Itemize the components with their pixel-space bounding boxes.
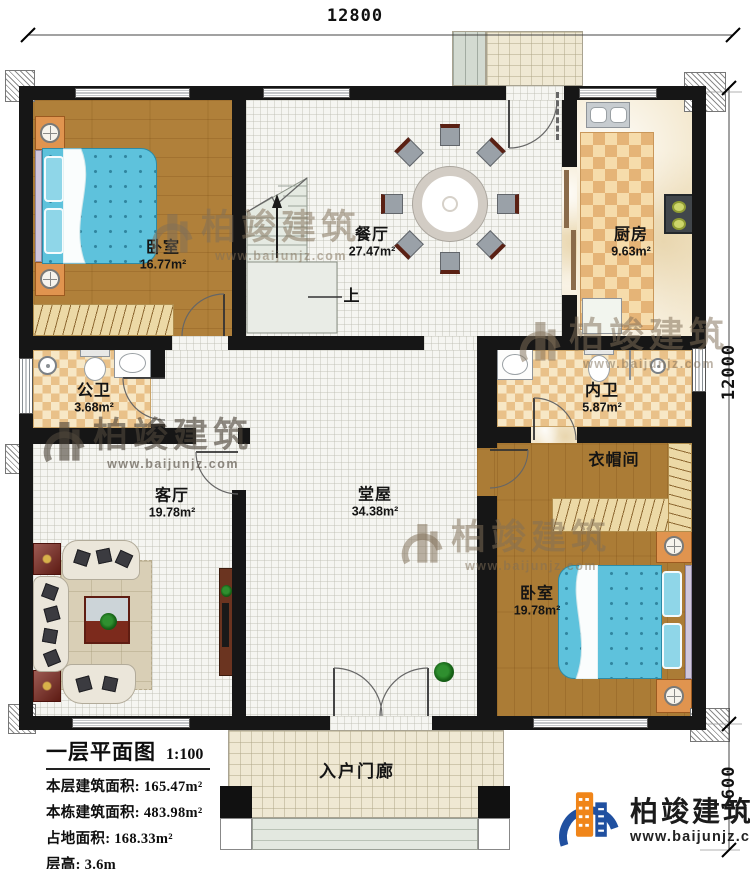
shower-drain-icon xyxy=(38,356,57,375)
nightstand xyxy=(656,529,692,563)
sliding-door-leaf xyxy=(571,230,576,290)
bath-sink xyxy=(114,348,151,378)
label-inner-bath: 内卫5.87m² xyxy=(582,383,622,416)
window xyxy=(692,348,706,392)
brand-name: 柏竣建筑 xyxy=(630,797,750,826)
cloakroom-rack-bottom xyxy=(552,498,674,532)
plan-title-row: 一层平面图 1:100 xyxy=(46,736,210,770)
porch-step-block-left xyxy=(220,818,252,850)
info-building-area: 本栋建筑面积: 483.98m² xyxy=(46,801,210,822)
dining-chair xyxy=(440,252,460,274)
blanket-fold xyxy=(566,565,598,679)
corner-table xyxy=(33,670,61,702)
toilet xyxy=(584,346,614,384)
label-porch: 入户门廊 xyxy=(319,762,395,782)
dining-table-center xyxy=(442,196,458,212)
porch-column-left xyxy=(220,786,252,818)
corner-table xyxy=(33,543,61,575)
screen-door-track xyxy=(556,92,559,140)
toilet xyxy=(80,348,110,382)
brand-logo-icon xyxy=(550,788,622,854)
lamp-icon xyxy=(664,686,684,706)
plant-icon xyxy=(221,585,232,597)
wall-kitchen-west-upper xyxy=(562,100,577,167)
plant-icon xyxy=(434,662,454,682)
wall-publicbath-east-upper xyxy=(151,350,165,378)
lamp-icon xyxy=(664,536,684,556)
lamp-icon xyxy=(40,269,60,289)
bed-bedroom-br xyxy=(558,563,692,681)
doorway-entry xyxy=(330,716,432,730)
window xyxy=(19,358,33,414)
porch-column-right xyxy=(478,786,510,818)
wall-living-north-stub xyxy=(238,428,250,444)
info-storey-height: 层高: 3.6m xyxy=(46,853,210,869)
label-kitchen: 厨房9.63m² xyxy=(611,227,651,260)
plant-icon xyxy=(100,613,117,630)
floor-plan-canvas: 12800 12000 1600 卧室16.77m² 餐厅27.47m² 厨房9… xyxy=(0,0,750,869)
lamp-icon xyxy=(40,123,60,143)
wall-living-north xyxy=(33,428,196,444)
window xyxy=(263,88,350,98)
wall-hall-east xyxy=(477,336,497,448)
porch-step-block-right xyxy=(478,818,510,850)
wardrobe-bedroom-tl xyxy=(33,304,174,336)
brand-text: 柏竣建筑 www.baijunjz.com xyxy=(630,797,750,844)
window xyxy=(533,718,648,728)
window xyxy=(579,88,657,98)
doorway-cloakroom xyxy=(477,448,497,496)
label-stairs-up: 上 xyxy=(343,288,360,306)
blanket-fold xyxy=(63,148,99,264)
back-porch xyxy=(486,31,583,86)
wall-living-hall xyxy=(232,490,246,716)
floor-dining xyxy=(246,100,562,336)
nightstand xyxy=(35,116,65,150)
dining-chair xyxy=(497,194,519,214)
porch-steps xyxy=(252,818,478,850)
wall-kitchen-west-lower xyxy=(562,295,577,350)
doorway-inner-bath xyxy=(531,427,577,443)
wall-hall-east2 xyxy=(477,496,497,716)
wall-exterior-right xyxy=(692,86,706,730)
tv-icon xyxy=(222,603,229,647)
coffee-table xyxy=(84,596,130,644)
wall-kitchen-south xyxy=(497,336,706,350)
kitchen-sink xyxy=(586,102,630,128)
label-cloakroom: 衣帽间 xyxy=(588,452,639,470)
wall-innerbath-south-left xyxy=(497,427,531,443)
label-bedroom-tl: 卧室16.77m² xyxy=(140,240,187,273)
label-living: 客厅19.78m² xyxy=(149,488,196,521)
shower-head-icon xyxy=(650,358,666,374)
dim-width-top: 12800 xyxy=(325,6,385,26)
label-hall: 堂屋34.38m² xyxy=(352,487,399,520)
nightstand xyxy=(35,262,65,296)
info-footprint-area: 占地面积: 168.33m² xyxy=(46,827,210,848)
back-porch-step xyxy=(452,31,486,86)
info-floor-area: 本层建筑面积: 165.47m² xyxy=(46,775,210,796)
sofa-top xyxy=(62,540,140,580)
wall-bedroomtl-dining xyxy=(232,100,246,346)
window xyxy=(75,88,190,98)
tv-cabinet xyxy=(219,568,233,676)
cloakroom-rack-right xyxy=(668,443,692,532)
window xyxy=(72,718,190,728)
label-bedroom-br: 卧室19.78m² xyxy=(514,586,561,619)
dining-chair xyxy=(381,194,403,214)
brand-logo: 柏竣建筑 www.baijunjz.com xyxy=(550,788,750,854)
brand-url: www.baijunjz.com xyxy=(630,829,750,845)
wall-stairs-south xyxy=(246,336,424,350)
bath-sink xyxy=(497,348,533,380)
loveseat xyxy=(62,664,136,704)
dining-chair xyxy=(440,124,460,146)
nightstand xyxy=(656,679,692,713)
label-public-bath: 公卫3.68m² xyxy=(74,383,114,416)
wall-bedroomtl-bottom-stub xyxy=(228,336,246,350)
wall-bedroomtl-bottom xyxy=(33,336,172,350)
sofa-left xyxy=(33,576,69,672)
wall-innerbath-south-right xyxy=(577,427,706,443)
sliding-door-leaf xyxy=(564,170,569,228)
fridge xyxy=(582,298,622,334)
bed-bedroom-tl xyxy=(35,148,157,264)
dim-height-right: 12000 xyxy=(719,342,739,402)
stove xyxy=(664,194,694,234)
shower-partition xyxy=(629,348,631,380)
passage-dining-hall xyxy=(424,336,477,350)
title-block: 一层平面图 1:100 本层建筑面积: 165.47m² 本栋建筑面积: 483… xyxy=(46,736,210,869)
plan-title: 一层平面图 xyxy=(46,736,156,766)
label-dining: 餐厅27.47m² xyxy=(349,227,396,260)
doorway-bedroom-tl xyxy=(172,336,228,350)
plan-scale: 1:100 xyxy=(166,746,203,764)
